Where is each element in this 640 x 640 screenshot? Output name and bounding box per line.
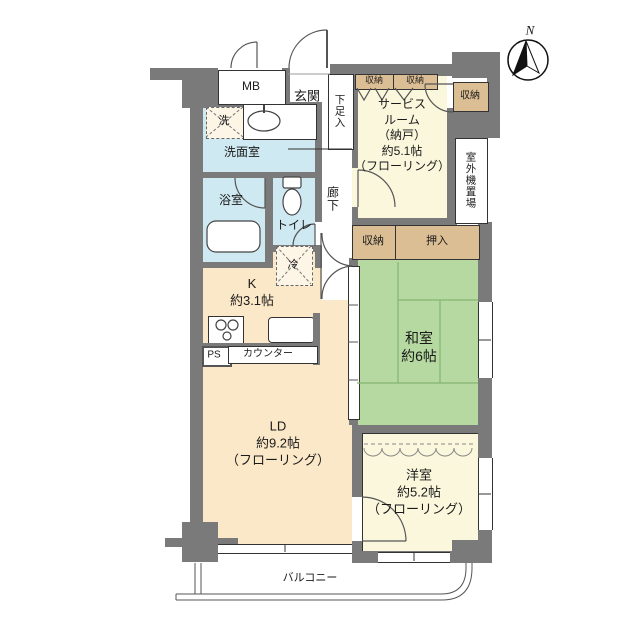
compass-icon xyxy=(508,40,548,80)
label-storage-top-left: 収納 xyxy=(365,75,383,87)
sliding-door-ticks xyxy=(348,305,358,380)
floor-plan: MB 玄関 下足入 サービス ルーム （納戸） 約5.1帖 （フローリング） 収… xyxy=(0,0,640,640)
label-shoe-box: 下足入 xyxy=(333,94,348,129)
label-north: N xyxy=(526,23,535,40)
label-service-line4: 約5.1帖 xyxy=(354,144,450,160)
label-japanese-line1: 和室 xyxy=(401,329,437,347)
ld-door-arc-lower xyxy=(322,266,352,299)
label-mb: MB xyxy=(242,79,260,95)
label-storage-mid: 収納 xyxy=(362,234,384,248)
label-oshiire: 押入 xyxy=(426,234,448,248)
entrance-door-arc xyxy=(289,30,327,68)
label-storage-upper-right: 収納 xyxy=(460,90,480,103)
label-fridge: 冷 xyxy=(288,258,299,272)
sliding-door-tick xyxy=(348,305,358,380)
label-service-line5: （フローリング） xyxy=(354,159,450,175)
toilet-bowl xyxy=(283,189,301,215)
label-washer: 洗 xyxy=(219,114,230,128)
label-toilet: トイレ xyxy=(276,218,312,234)
hanger-scallops xyxy=(364,444,476,456)
label-kitchen: K 約3.1帖 xyxy=(230,276,274,310)
toilet-tank xyxy=(283,177,301,188)
label-kitchen-line2: 約3.1帖 xyxy=(230,293,274,310)
wash-basin xyxy=(248,111,280,131)
compass-needle-dark xyxy=(513,41,527,75)
compass-needle-light xyxy=(526,41,539,73)
label-kitchen-line1: K xyxy=(230,276,274,293)
mb-door-arc xyxy=(231,42,257,68)
label-japanese-line2: 約6帖 xyxy=(401,347,437,365)
label-ld-line2: 約9.2帖 xyxy=(226,436,330,453)
label-western-line2: 約5.2帖 xyxy=(367,485,471,502)
label-bathroom: 浴室 xyxy=(219,193,243,209)
stove-burner xyxy=(223,332,231,340)
label-ps: PS xyxy=(207,349,220,362)
label-corridor: 廊下 xyxy=(325,186,342,212)
label-outdoor-unit: 室外機置場 xyxy=(464,151,479,209)
label-balcony: バルコニー xyxy=(283,571,338,585)
label-western-line3: （フローリング） xyxy=(367,501,471,518)
label-entrance: 玄関 xyxy=(294,89,320,106)
label-counter: カウンター xyxy=(243,348,293,361)
label-living-dining: LD 約9.2帖 （フローリング） xyxy=(226,419,330,470)
label-service-line1: サービス xyxy=(354,97,450,113)
label-ld-line3: （フローリング） xyxy=(226,452,330,469)
label-japanese-room: 和室 約6帖 xyxy=(401,329,437,365)
stove-burner xyxy=(228,320,238,330)
label-ld-line1: LD xyxy=(226,419,330,436)
label-storage-top-right: 収納 xyxy=(406,75,424,87)
label-western-room: 洋室 約5.2帖 （フローリング） xyxy=(367,468,471,519)
label-service-room: サービス ルーム （納戸） 約5.1帖 （フローリング） xyxy=(354,97,450,175)
stove-burner xyxy=(216,320,226,330)
service-door-arc xyxy=(358,170,395,207)
bathtub xyxy=(207,221,260,252)
ld-door-arc-upper xyxy=(322,233,352,266)
label-western-line1: 洋室 xyxy=(367,468,471,485)
label-service-line3: （納戸） xyxy=(354,128,450,144)
label-washroom: 洗面室 xyxy=(224,145,260,161)
hanger-scallop-path xyxy=(364,448,472,456)
label-service-line2: ルーム xyxy=(354,113,450,129)
